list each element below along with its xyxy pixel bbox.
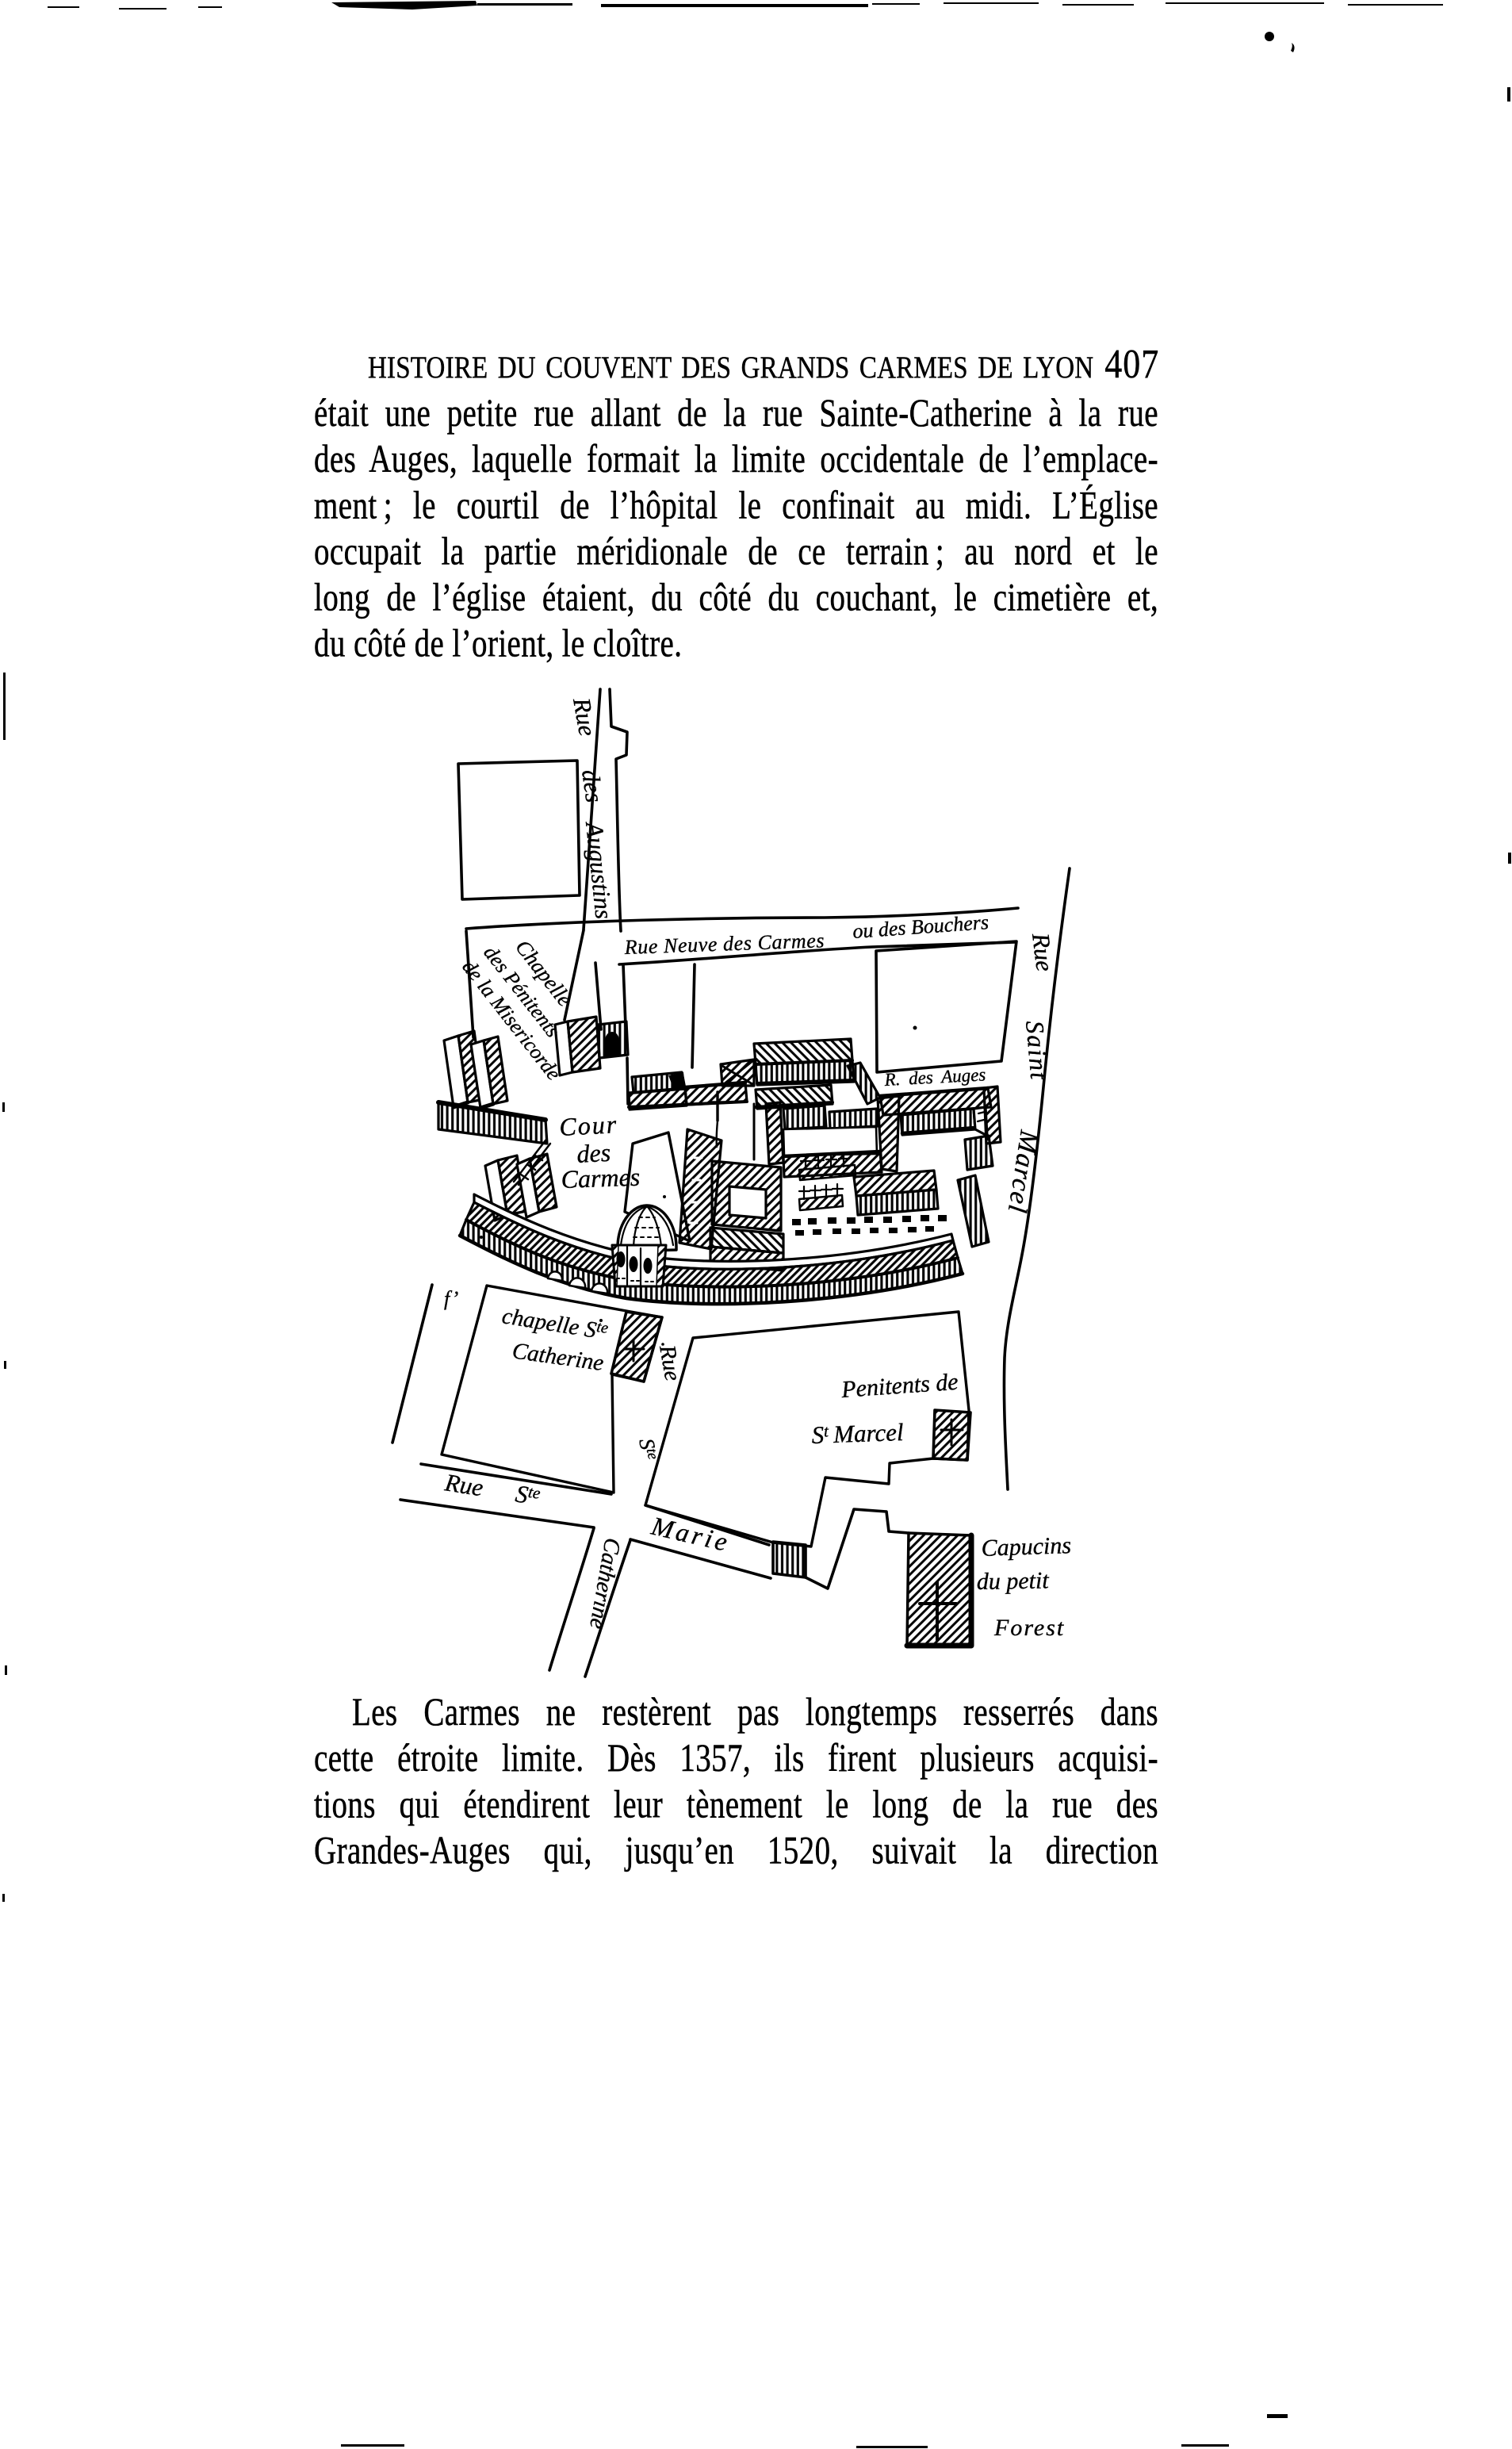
svg-text:du petit: du petit bbox=[977, 1567, 1050, 1595]
svg-text:Rue Neuve des Carmes: Rue Neuve des Carmes bbox=[623, 929, 825, 959]
svg-text:des: des bbox=[576, 768, 608, 804]
svg-text:Carmes: Carmes bbox=[561, 1163, 641, 1194]
svg-text:Rue: Rue bbox=[568, 695, 602, 738]
svg-text:Catherine: Catherine bbox=[511, 1338, 605, 1376]
svg-text:Penitents de: Penitents de bbox=[840, 1369, 959, 1403]
svg-text:Rue: Rue bbox=[1027, 931, 1059, 973]
svg-text:Catherine: Catherine bbox=[584, 1536, 626, 1631]
svg-text:St Marcel: St Marcel bbox=[811, 1418, 904, 1449]
svg-text:Cour: Cour bbox=[558, 1110, 618, 1141]
svg-text:R. des Auges: R. des Auges bbox=[883, 1064, 986, 1090]
svg-text:Forest: Forest bbox=[993, 1615, 1065, 1641]
svg-text:f’: f’ bbox=[444, 1287, 458, 1310]
svg-text:Rue: Rue bbox=[654, 1343, 686, 1383]
svg-text:Capucins: Capucins bbox=[981, 1532, 1071, 1562]
svg-text:Marcel: Marcel bbox=[1002, 1128, 1044, 1216]
svg-text:Saint: Saint bbox=[1020, 1019, 1054, 1082]
